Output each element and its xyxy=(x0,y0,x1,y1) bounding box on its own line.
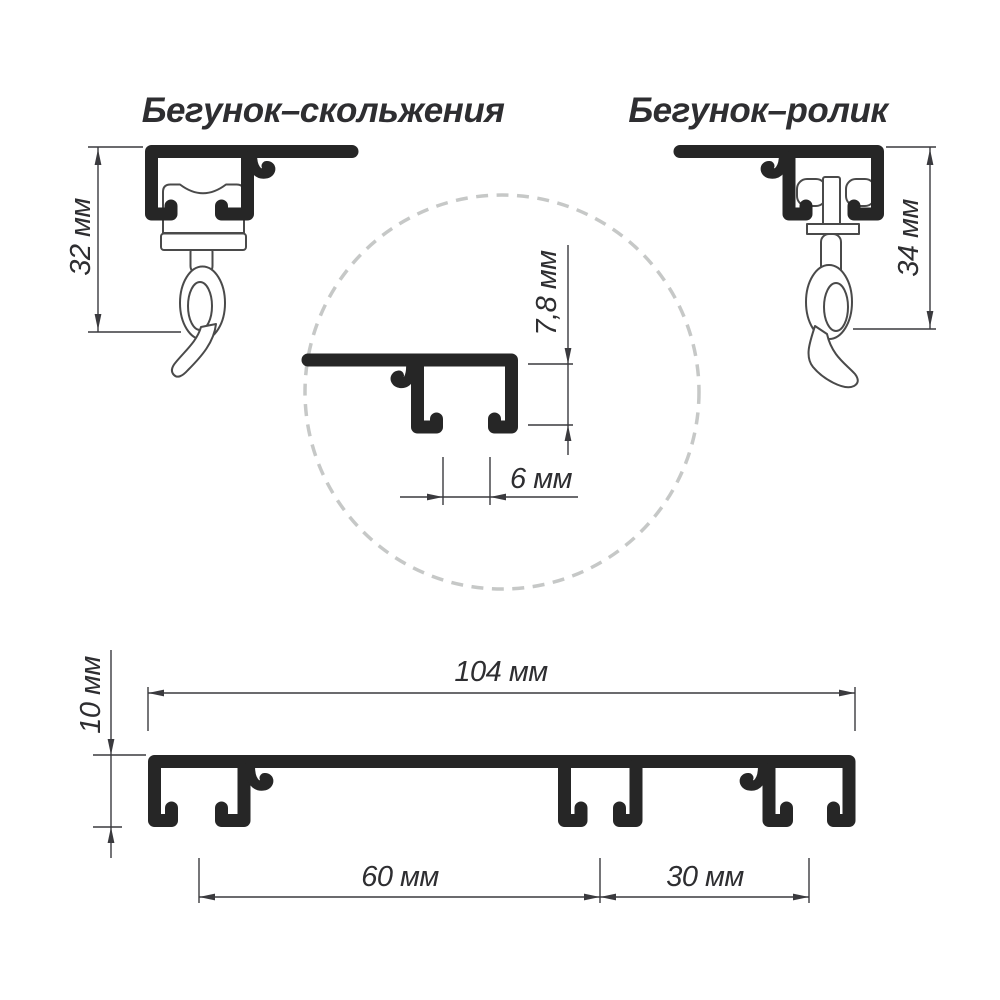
technical-drawing-page: Бегунок–скольжения Бегунок–ролик 7,8 мм … xyxy=(0,0,1000,1000)
dim-profile-height-label: 10 мм xyxy=(75,656,107,734)
main-profile-section xyxy=(155,762,850,821)
dim-groove-pitch: 60 мм 30 мм xyxy=(199,858,809,903)
dim-groove-depth-label: 7,8 мм xyxy=(531,250,563,336)
slider-runner-figure: 32 мм xyxy=(65,147,352,377)
roller-carriage xyxy=(823,177,840,227)
dim-profile-width: 104 мм xyxy=(148,656,855,731)
dim-roller-height-label: 34 мм xyxy=(893,199,925,277)
main-profile-figure: 104 мм 10 мм 60 мм 30 мм xyxy=(75,650,855,903)
dim-groove-slot-width-label: 6 мм xyxy=(510,463,573,495)
title-slider-runner: Бегунок–скольжения xyxy=(142,91,505,130)
dim-groove-depth: 7,8 мм xyxy=(528,245,573,455)
roller-runner-figure: 34 мм xyxy=(680,147,936,387)
dim-profile-height: 10 мм xyxy=(75,650,146,858)
detail-circle xyxy=(305,195,699,589)
dim-groove-pitch-wide-label: 60 мм xyxy=(361,861,439,893)
dim-profile-width-label: 104 мм xyxy=(454,656,548,688)
detail-profile xyxy=(308,360,512,427)
slider-hook xyxy=(172,267,225,377)
roller-crossbar xyxy=(807,224,859,234)
roller-hook xyxy=(806,265,858,387)
detail-circle-figure: 7,8 мм 6 мм xyxy=(305,195,699,589)
dim-roller-height: 34 мм xyxy=(853,147,936,329)
dim-slider-height-label: 32 мм xyxy=(65,198,97,276)
dim-groove-pitch-narrow-label: 30 мм xyxy=(666,861,744,893)
title-roller-runner: Бегунок–ролик xyxy=(628,91,890,130)
diagram-canvas: Бегунок–скольжения Бегунок–ролик 7,8 мм … xyxy=(0,0,1000,1000)
slider-glider-base xyxy=(161,234,246,251)
dim-groove-slot-width: 6 мм xyxy=(400,457,578,505)
